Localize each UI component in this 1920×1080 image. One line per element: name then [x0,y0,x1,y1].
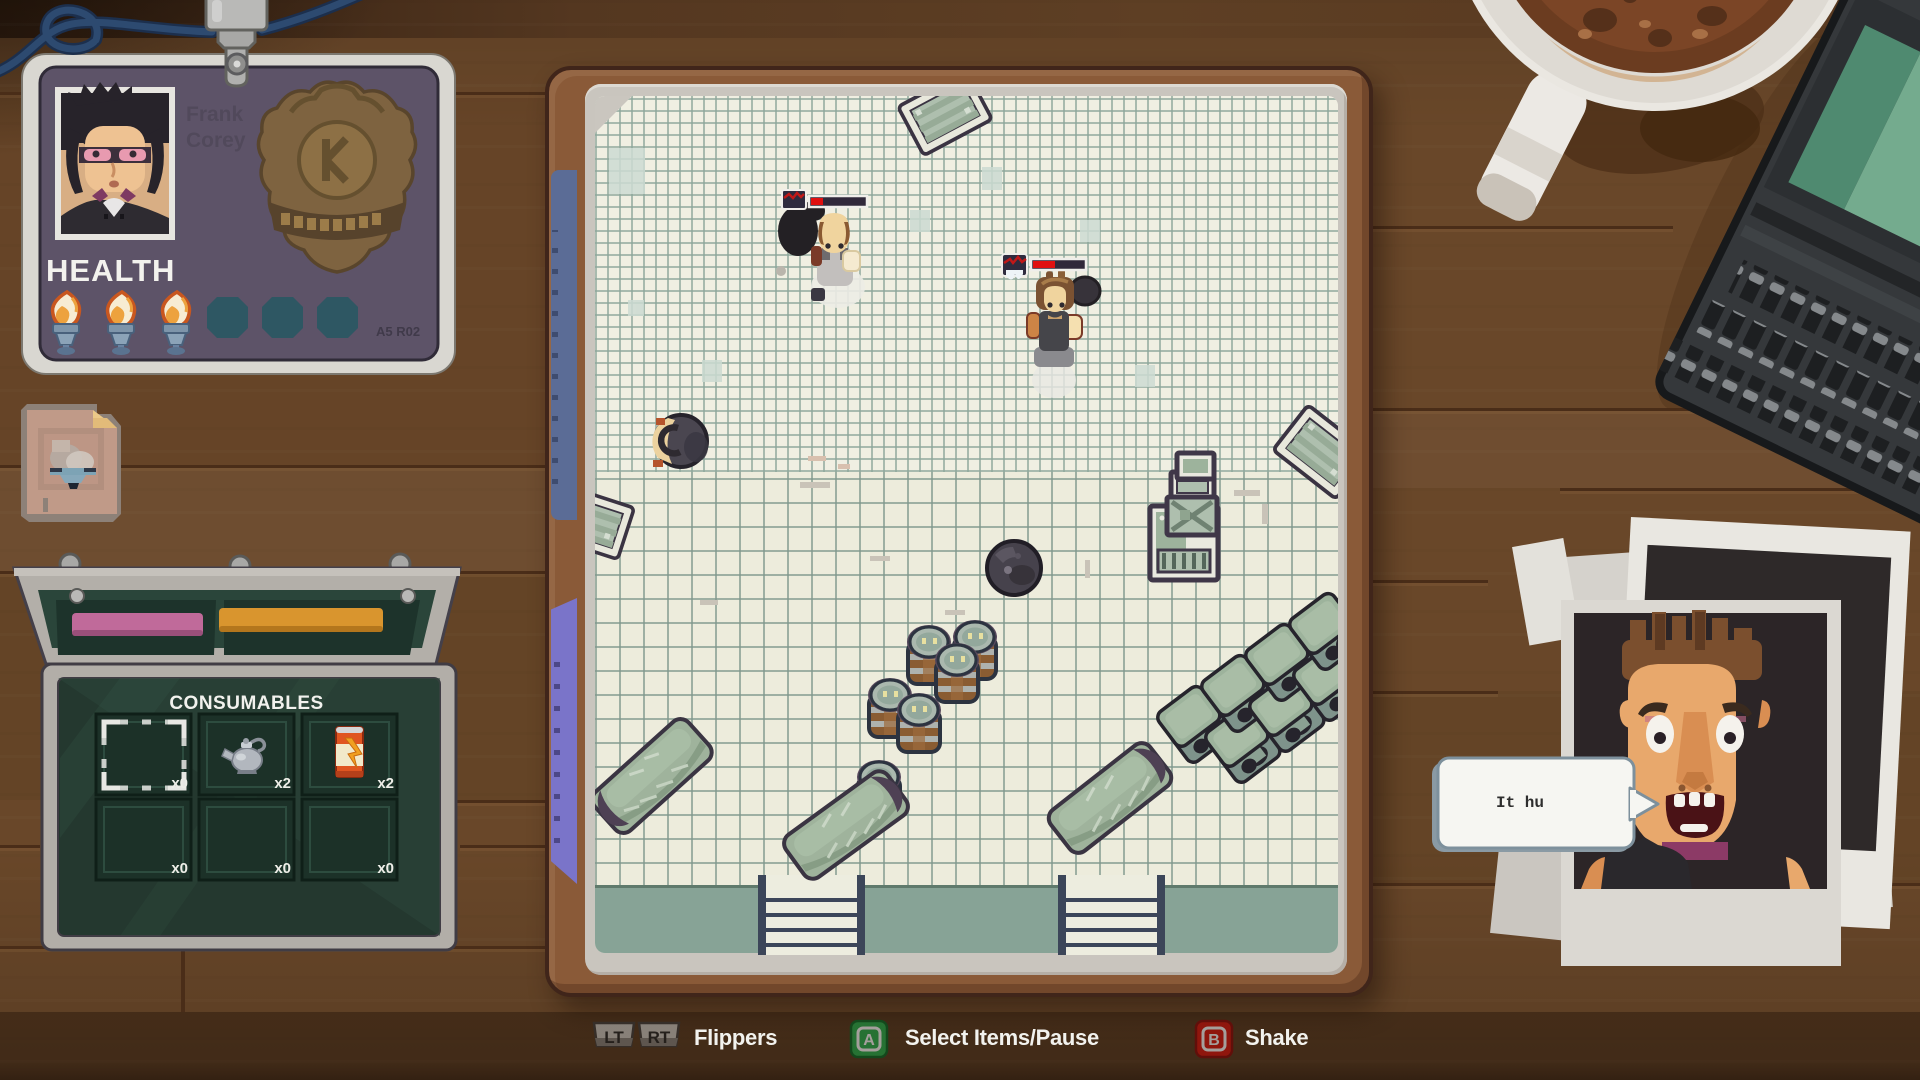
svg-text:Frank: Frank [186,103,244,126]
svg-text:A5 R02: A5 R02 [376,324,420,339]
svg-text:Corey: Corey [186,129,246,152]
